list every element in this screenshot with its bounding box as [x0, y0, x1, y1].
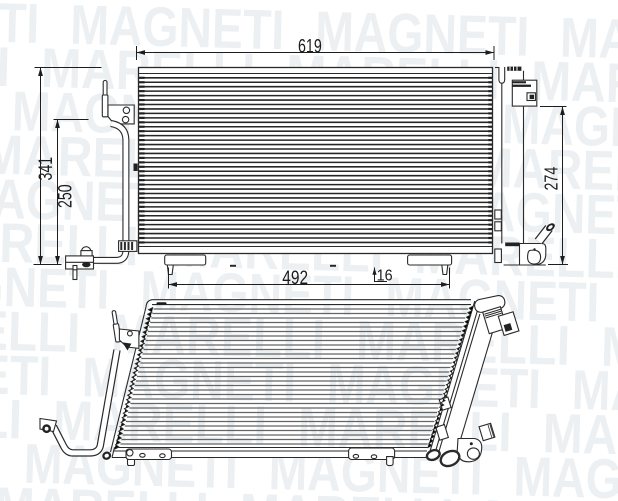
svg-text:250: 250 — [56, 184, 77, 208]
svg-text:MARELLI: MARELLI — [0, 382, 23, 451]
svg-text:274: 274 — [542, 167, 562, 191]
svg-text:619: 619 — [298, 36, 322, 57]
svg-text:MARELLI: MARELLI — [0, 30, 11, 99]
svg-text:16: 16 — [377, 268, 393, 285]
svg-text:492: 492 — [282, 268, 308, 289]
svg-text:MARELLI: MARELLI — [0, 475, 209, 501]
svg-text:MARELLI: MARELLI — [484, 488, 618, 501]
svg-text:341: 341 — [36, 157, 57, 181]
